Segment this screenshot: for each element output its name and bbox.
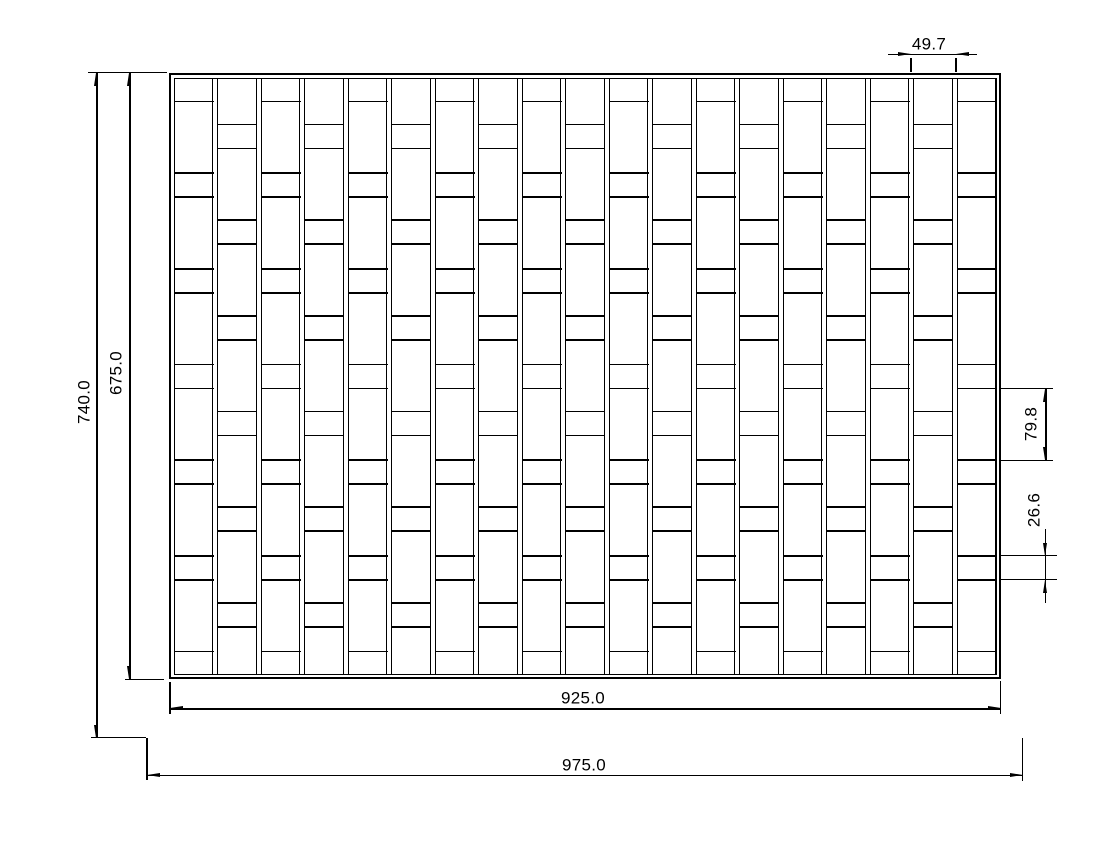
slat-divider-line xyxy=(391,315,431,316)
slat-divider-line xyxy=(522,196,562,197)
slat-divider-line xyxy=(652,339,692,340)
slat-divider-line xyxy=(478,124,518,125)
slat-divider-line xyxy=(696,459,736,460)
slat-divider-line xyxy=(565,626,605,627)
slat-divider-line xyxy=(957,459,997,460)
slat-divider-line xyxy=(304,148,344,149)
slat-divider-line xyxy=(478,315,518,316)
slat-divider-line xyxy=(217,530,257,531)
slat-divider-line xyxy=(913,243,953,244)
slat-divider-line xyxy=(565,530,605,531)
slat-divider-line xyxy=(174,483,214,484)
panel-height-dimension-line xyxy=(129,73,130,679)
slat-divider-line xyxy=(261,172,301,173)
slat-edge-line xyxy=(299,78,300,675)
slat-divider-line xyxy=(435,388,475,389)
slat-divider-line xyxy=(870,651,910,652)
slat-divider-line xyxy=(348,268,388,269)
slat-divider-line xyxy=(348,364,388,365)
slat-edge-line xyxy=(691,78,692,675)
slat-divider-line xyxy=(565,435,605,436)
slat-divider-line xyxy=(870,364,910,365)
slat-divider-line xyxy=(913,148,953,149)
slat-divider-line xyxy=(870,268,910,269)
slat-pitch-arrowhead xyxy=(956,52,969,56)
slat-divider-line xyxy=(304,435,344,436)
overall-width-label: 975.0 xyxy=(562,756,606,773)
slat-divider-line xyxy=(739,602,779,603)
slat-edge-line xyxy=(212,78,213,675)
slat-divider-line xyxy=(435,292,475,293)
slat-divider-line xyxy=(348,459,388,460)
slat-divider-line xyxy=(261,292,301,293)
slat-divider-line xyxy=(348,579,388,580)
slat-divider-line xyxy=(174,388,214,389)
slat-edge-line xyxy=(261,78,262,675)
slat-divider-line xyxy=(478,626,518,627)
slat-divider-line xyxy=(522,292,562,293)
slat-edge-line xyxy=(256,78,257,675)
panel-height-extension-line xyxy=(125,679,164,680)
slat-divider-line xyxy=(304,243,344,244)
slat-divider-line xyxy=(652,530,692,531)
slat-divider-line xyxy=(652,219,692,220)
slat-divider-line xyxy=(565,124,605,125)
slat-divider-line xyxy=(217,626,257,627)
slat-divider-line xyxy=(435,459,475,460)
slat-edge-line xyxy=(652,78,653,675)
slat-divider-line xyxy=(870,101,910,102)
slat-divider-line xyxy=(435,651,475,652)
slat-divider-line xyxy=(522,579,562,580)
slat-divider-line xyxy=(609,579,649,580)
slat-divider-line xyxy=(348,651,388,652)
slat-divider-line xyxy=(261,651,301,652)
slat-pitch-extension-line xyxy=(910,58,911,72)
slat-edge-line xyxy=(386,78,387,675)
slat-edge-line xyxy=(734,78,735,675)
slat-divider-line xyxy=(826,243,866,244)
slat-divider-line xyxy=(565,602,605,603)
slat-divider-line xyxy=(870,555,910,556)
slat-divider-line xyxy=(174,579,214,580)
slat-divider-line xyxy=(609,483,649,484)
slat-divider-line xyxy=(435,555,475,556)
slat-divider-line xyxy=(391,530,431,531)
slat-divider-line xyxy=(913,315,953,316)
slat-edge-line xyxy=(609,78,610,675)
slat-edge-line xyxy=(517,78,518,675)
slat-divider-line xyxy=(696,651,736,652)
slat-divider-line xyxy=(565,506,605,507)
slat-divider-line xyxy=(826,530,866,531)
slat-divider-line xyxy=(783,292,823,293)
slat-divider-line xyxy=(826,602,866,603)
slat-divider-line xyxy=(913,339,953,340)
slat-divider-line xyxy=(435,172,475,173)
slat-divider-line xyxy=(783,555,823,556)
short-block-height-extension-line xyxy=(999,579,1057,580)
slat-edge-line xyxy=(870,78,871,675)
panel-width-dimension-line xyxy=(170,708,1001,709)
slat-divider-line xyxy=(826,339,866,340)
slat-divider-line xyxy=(696,579,736,580)
slat-edge-line xyxy=(952,78,953,675)
overall-width-arrowhead xyxy=(1010,773,1023,777)
slat-divider-line xyxy=(652,411,692,412)
slat-divider-line xyxy=(783,651,823,652)
slat-divider-line xyxy=(522,101,562,102)
slat-pitch-extension-line xyxy=(955,58,956,72)
slat-divider-line xyxy=(913,435,953,436)
slat-divider-line xyxy=(739,339,779,340)
slat-divider-line xyxy=(217,339,257,340)
slat-pitch-label: 49.7 xyxy=(912,36,946,53)
overall-height-arrowhead xyxy=(94,725,98,738)
slat-divider-line xyxy=(957,388,997,389)
slat-edge-line xyxy=(957,78,958,675)
slat-divider-line xyxy=(913,602,953,603)
slat-divider-line xyxy=(609,268,649,269)
slat-divider-line xyxy=(217,219,257,220)
slat-divider-line xyxy=(565,219,605,220)
slat-divider-line xyxy=(391,602,431,603)
slat-divider-line xyxy=(957,651,997,652)
slat-edge-line xyxy=(348,78,349,675)
slat-divider-line xyxy=(304,626,344,627)
slat-edge-line xyxy=(435,78,436,675)
slat-divider-line xyxy=(652,435,692,436)
slat-divider-line xyxy=(391,243,431,244)
slat-divider-line xyxy=(913,530,953,531)
slat-divider-line xyxy=(522,459,562,460)
slat-divider-line xyxy=(391,435,431,436)
slat-divider-line xyxy=(913,411,953,412)
slat-divider-line xyxy=(826,506,866,507)
slat-divider-line xyxy=(783,196,823,197)
tall-block-height-label: 79.8 xyxy=(1023,407,1040,441)
panel-inner-border xyxy=(174,78,997,675)
slat-divider-line xyxy=(174,196,214,197)
slat-divider-line xyxy=(870,483,910,484)
slat-divider-line xyxy=(783,101,823,102)
slat-divider-line xyxy=(696,172,736,173)
slat-divider-line xyxy=(826,148,866,149)
slat-divider-line xyxy=(783,172,823,173)
overall-height-label: 740.0 xyxy=(76,380,93,424)
slat-divider-line xyxy=(739,243,779,244)
slat-divider-line xyxy=(348,483,388,484)
slat-divider-line xyxy=(826,124,866,125)
slat-divider-line xyxy=(826,626,866,627)
slat-divider-line xyxy=(696,555,736,556)
slat-divider-line xyxy=(696,101,736,102)
slat-edge-line xyxy=(304,78,305,675)
slat-divider-line xyxy=(609,172,649,173)
slat-divider-line xyxy=(391,626,431,627)
slat-divider-line xyxy=(522,268,562,269)
slat-divider-line xyxy=(870,459,910,460)
slat-divider-line xyxy=(304,506,344,507)
slat-divider-line xyxy=(652,626,692,627)
slat-divider-line xyxy=(652,148,692,149)
panel-width-arrowhead xyxy=(170,706,183,710)
slat-divider-line xyxy=(304,339,344,340)
slat-edge-line xyxy=(995,78,996,675)
technical-drawing-canvas: 740.0675.0925.0975.049.779.826.6 xyxy=(0,0,1115,856)
slat-divider-line xyxy=(913,626,953,627)
slat-divider-line xyxy=(652,506,692,507)
slat-divider-line xyxy=(565,411,605,412)
tall-block-height-arrowhead xyxy=(1043,447,1047,460)
slat-divider-line xyxy=(217,148,257,149)
slat-divider-line xyxy=(609,555,649,556)
slat-edge-line xyxy=(696,78,697,675)
slat-divider-line xyxy=(609,292,649,293)
overall-height-arrowhead xyxy=(94,73,98,86)
slat-divider-line xyxy=(391,339,431,340)
slat-divider-line xyxy=(522,651,562,652)
slat-pitch-arrowhead xyxy=(898,52,911,56)
slat-divider-line xyxy=(739,219,779,220)
slat-divider-line xyxy=(870,292,910,293)
slat-divider-line xyxy=(261,268,301,269)
slat-divider-line xyxy=(783,388,823,389)
slat-divider-line xyxy=(261,196,301,197)
slat-divider-line xyxy=(957,196,997,197)
slat-divider-line xyxy=(174,459,214,460)
slat-edge-line xyxy=(778,78,779,675)
slat-divider-line xyxy=(522,388,562,389)
slat-divider-line xyxy=(957,101,997,102)
slat-divider-line xyxy=(348,555,388,556)
slat-divider-line xyxy=(304,315,344,316)
slat-divider-line xyxy=(522,483,562,484)
short-block-height-extension-line xyxy=(999,555,1057,556)
slat-divider-line xyxy=(391,219,431,220)
slat-edge-line xyxy=(174,78,175,675)
slat-divider-line xyxy=(739,148,779,149)
slat-divider-line xyxy=(696,388,736,389)
slat-divider-line xyxy=(870,196,910,197)
slat-divider-line xyxy=(174,555,214,556)
slat-divider-line xyxy=(913,124,953,125)
slat-divider-line xyxy=(478,530,518,531)
slat-edge-line xyxy=(391,78,392,675)
slat-divider-line xyxy=(391,124,431,125)
slat-edge-line xyxy=(473,78,474,675)
slat-divider-line xyxy=(435,579,475,580)
slat-divider-line xyxy=(522,172,562,173)
slat-divider-line xyxy=(609,388,649,389)
panel-width-arrowhead xyxy=(988,706,1001,710)
slat-divider-line xyxy=(739,506,779,507)
short-block-height-arrowhead xyxy=(1043,580,1047,593)
slat-divider-line xyxy=(478,339,518,340)
slat-divider-line xyxy=(870,172,910,173)
slat-divider-line xyxy=(826,435,866,436)
slat-divider-line xyxy=(565,148,605,149)
slat-divider-line xyxy=(565,339,605,340)
short-block-height-arrowhead xyxy=(1043,543,1047,556)
slat-divider-line xyxy=(348,101,388,102)
slat-divider-line xyxy=(696,483,736,484)
slat-divider-line xyxy=(609,196,649,197)
slat-divider-line xyxy=(261,388,301,389)
slat-divider-line xyxy=(217,243,257,244)
slat-divider-line xyxy=(870,579,910,580)
slat-divider-line xyxy=(913,506,953,507)
slat-edge-line xyxy=(522,78,523,675)
slat-edge-line xyxy=(821,78,822,675)
slat-divider-line xyxy=(478,148,518,149)
slat-divider-line xyxy=(826,219,866,220)
slat-divider-line xyxy=(870,388,910,389)
slat-divider-line xyxy=(957,555,997,556)
slat-divider-line xyxy=(217,124,257,125)
slat-divider-line xyxy=(739,124,779,125)
slat-divider-line xyxy=(261,364,301,365)
slat-divider-line xyxy=(696,364,736,365)
slat-divider-line xyxy=(739,315,779,316)
slat-divider-line xyxy=(478,506,518,507)
slat-edge-line xyxy=(478,78,479,675)
slat-divider-line xyxy=(565,243,605,244)
slat-divider-line xyxy=(652,243,692,244)
slat-divider-line xyxy=(739,411,779,412)
slat-divider-line xyxy=(957,268,997,269)
slat-edge-line xyxy=(913,78,914,675)
slat-divider-line xyxy=(391,506,431,507)
slat-edge-line xyxy=(908,78,909,675)
slat-divider-line xyxy=(435,101,475,102)
slat-divider-line xyxy=(957,483,997,484)
slat-divider-line xyxy=(174,292,214,293)
slat-divider-line xyxy=(739,435,779,436)
slat-divider-line xyxy=(217,602,257,603)
slat-divider-line xyxy=(174,651,214,652)
slat-divider-line xyxy=(957,172,997,173)
slat-divider-line xyxy=(435,483,475,484)
slat-divider-line xyxy=(957,292,997,293)
slat-divider-line xyxy=(522,364,562,365)
slat-edge-line xyxy=(217,78,218,675)
slat-divider-line xyxy=(565,315,605,316)
panel-height-arrowhead xyxy=(127,73,131,86)
panel-height-arrowhead xyxy=(127,666,131,679)
slat-divider-line xyxy=(217,411,257,412)
slat-edge-line xyxy=(343,78,344,675)
slat-divider-line xyxy=(609,101,649,102)
slat-divider-line xyxy=(478,602,518,603)
slat-divider-line xyxy=(261,483,301,484)
slat-divider-line xyxy=(957,364,997,365)
slat-divider-line xyxy=(913,219,953,220)
slat-divider-line xyxy=(696,268,736,269)
overall-width-dimension-line xyxy=(147,775,1023,776)
slat-divider-line xyxy=(261,101,301,102)
slat-edge-line xyxy=(647,78,648,675)
slat-divider-line xyxy=(652,315,692,316)
slat-divider-line xyxy=(304,602,344,603)
slat-divider-line xyxy=(217,506,257,507)
slat-divider-line xyxy=(826,315,866,316)
slat-divider-line xyxy=(261,579,301,580)
slat-divider-line xyxy=(478,435,518,436)
slat-divider-line xyxy=(435,268,475,269)
slat-divider-line xyxy=(652,602,692,603)
tall-block-height-arrowhead xyxy=(1043,389,1047,402)
slat-divider-line xyxy=(957,579,997,580)
slat-divider-line xyxy=(304,411,344,412)
short-block-height-label: 26.6 xyxy=(1026,493,1043,527)
slat-divider-line xyxy=(391,411,431,412)
slat-divider-line xyxy=(304,219,344,220)
slat-divider-line xyxy=(696,292,736,293)
slat-divider-line xyxy=(609,459,649,460)
slat-divider-line xyxy=(348,172,388,173)
slat-divider-line xyxy=(348,292,388,293)
slat-divider-line xyxy=(609,364,649,365)
slat-divider-line xyxy=(696,196,736,197)
slat-divider-line xyxy=(348,388,388,389)
slat-divider-line xyxy=(217,435,257,436)
slat-edge-line xyxy=(604,78,605,675)
slat-edge-line xyxy=(865,78,866,675)
slat-divider-line xyxy=(435,364,475,365)
slat-divider-line xyxy=(609,651,649,652)
slat-divider-line xyxy=(261,459,301,460)
slat-divider-line xyxy=(783,364,823,365)
slat-edge-line xyxy=(783,78,784,675)
slat-divider-line xyxy=(391,148,431,149)
slat-divider-line xyxy=(304,124,344,125)
overall-height-extension-line xyxy=(91,737,146,738)
slat-divider-line xyxy=(261,555,301,556)
panel-width-label: 925.0 xyxy=(561,690,605,707)
overall-height-dimension-line xyxy=(96,73,97,738)
slat-divider-line xyxy=(478,411,518,412)
slat-edge-line xyxy=(739,78,740,675)
slat-divider-line xyxy=(217,315,257,316)
slat-divider-line xyxy=(652,124,692,125)
slat-divider-line xyxy=(783,483,823,484)
panel-height-label: 675.0 xyxy=(108,351,125,395)
slat-edge-line xyxy=(826,78,827,675)
slat-divider-line xyxy=(478,219,518,220)
slat-divider-line xyxy=(304,530,344,531)
slat-divider-line xyxy=(174,172,214,173)
slat-divider-line xyxy=(783,459,823,460)
slat-divider-line xyxy=(435,196,475,197)
slat-divider-line xyxy=(783,268,823,269)
slat-divider-line xyxy=(348,196,388,197)
slat-divider-line xyxy=(739,530,779,531)
slat-divider-line xyxy=(826,411,866,412)
slat-divider-line xyxy=(174,101,214,102)
slat-edge-line xyxy=(430,78,431,675)
slat-divider-line xyxy=(522,555,562,556)
slat-divider-line xyxy=(174,268,214,269)
slat-divider-line xyxy=(783,579,823,580)
slat-divider-line xyxy=(739,626,779,627)
slat-divider-line xyxy=(478,243,518,244)
slat-divider-line xyxy=(174,364,214,365)
slat-edge-line xyxy=(565,78,566,675)
slat-edge-line xyxy=(560,78,561,675)
overall-width-arrowhead xyxy=(147,773,160,777)
